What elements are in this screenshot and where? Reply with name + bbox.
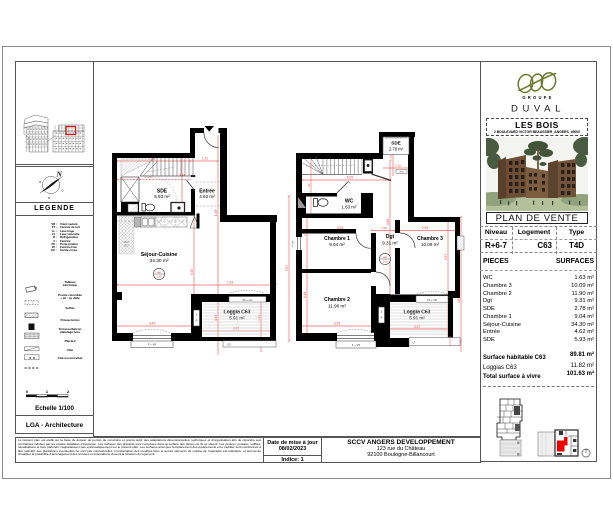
svg-text:Séjour-Cuisine: Séjour-Cuisine: [141, 252, 178, 258]
svg-text:34.30 m²: 34.30 m²: [150, 258, 169, 264]
svg-text:s: s: [48, 195, 50, 200]
svg-text:2.99: 2.99: [422, 226, 428, 230]
svg-text:DUVAL: DUVAL: [511, 104, 565, 115]
svg-text:1.24: 1.24: [145, 175, 151, 179]
svg-text:4.66: 4.66: [386, 219, 390, 225]
svg-text:3.25: 3.25: [334, 322, 340, 326]
svg-text:N: N: [56, 170, 63, 179]
svg-text:F+VR: F+VR: [292, 240, 294, 246]
svg-text:1.02: 1.02: [381, 226, 387, 230]
svg-text:Dgt: Dgt: [386, 234, 395, 240]
svg-text:1.21: 1.21: [202, 157, 208, 161]
svg-text:FF + VR: FF + VR: [427, 299, 437, 302]
svg-text:GROUPE: GROUPE: [522, 95, 553, 100]
svg-text:Chambre 2: Chambre 2: [324, 297, 350, 303]
svg-text:LT: LT: [413, 342, 416, 345]
svg-text:1.63 m²: 1.63 m²: [342, 205, 357, 210]
svg-text:7.23: 7.23: [227, 280, 233, 284]
svg-text:4.90: 4.90: [214, 315, 218, 321]
svg-text:9.31 m²: 9.31 m²: [382, 241, 398, 246]
svg-text:R: R: [196, 319, 198, 323]
svg-text:9.04 m²: 9.04 m²: [329, 242, 345, 247]
svg-text:4.62 m²: 4.62 m²: [199, 194, 215, 199]
svg-text:3.44: 3.44: [179, 173, 185, 177]
svg-text:3.57: 3.57: [285, 265, 289, 271]
svg-text:2: 2: [67, 389, 70, 394]
svg-text:1.48: 1.48: [214, 210, 218, 216]
svg-text:1.46: 1.46: [257, 315, 261, 321]
svg-text:VMC: VMC: [399, 172, 404, 174]
svg-text:GC: GC: [227, 343, 231, 346]
svg-text:80: 80: [307, 183, 311, 186]
svg-text:R: R: [381, 316, 383, 320]
svg-text:5.93 m²: 5.93 m²: [154, 194, 170, 199]
svg-text:2.78 m²: 2.78 m²: [389, 147, 404, 152]
svg-text:2.15: 2.15: [395, 164, 401, 168]
svg-text:PF + GC: PF + GC: [243, 299, 253, 302]
svg-text:F + VR: F + VR: [148, 343, 156, 347]
svg-text:1852: 1852: [123, 245, 129, 248]
svg-text:8.16: 8.16: [303, 292, 307, 298]
svg-text:asp: asp: [383, 256, 388, 259]
svg-text:S: S: [381, 310, 383, 314]
svg-text:11.90 m²: 11.90 m²: [328, 304, 346, 309]
svg-text:3.44: 3.44: [149, 322, 155, 326]
svg-text:1.80: 1.80: [383, 261, 388, 264]
svg-text:5.95: 5.95: [190, 269, 194, 275]
svg-text:S: S: [196, 313, 198, 317]
svg-text:o: o: [39, 179, 42, 184]
svg-text:SDE: SDE: [391, 141, 400, 146]
svg-text:1.80: 1.80: [157, 276, 162, 279]
svg-text:3.22: 3.22: [233, 327, 239, 331]
svg-text:asp: asp: [157, 271, 162, 274]
svg-text:3.57: 3.57: [444, 254, 448, 260]
svg-text:10.09 m²: 10.09 m²: [421, 242, 440, 247]
svg-text:Echelle 1/100: Echelle 1/100: [35, 405, 74, 412]
svg-text:F + VR: F + VR: [352, 343, 360, 347]
svg-text:0: 0: [26, 389, 29, 394]
svg-text:e: e: [62, 188, 65, 193]
svg-text:1: 1: [46, 389, 49, 394]
svg-text:1.73: 1.73: [389, 155, 393, 161]
svg-text:6.09: 6.09: [347, 176, 353, 180]
